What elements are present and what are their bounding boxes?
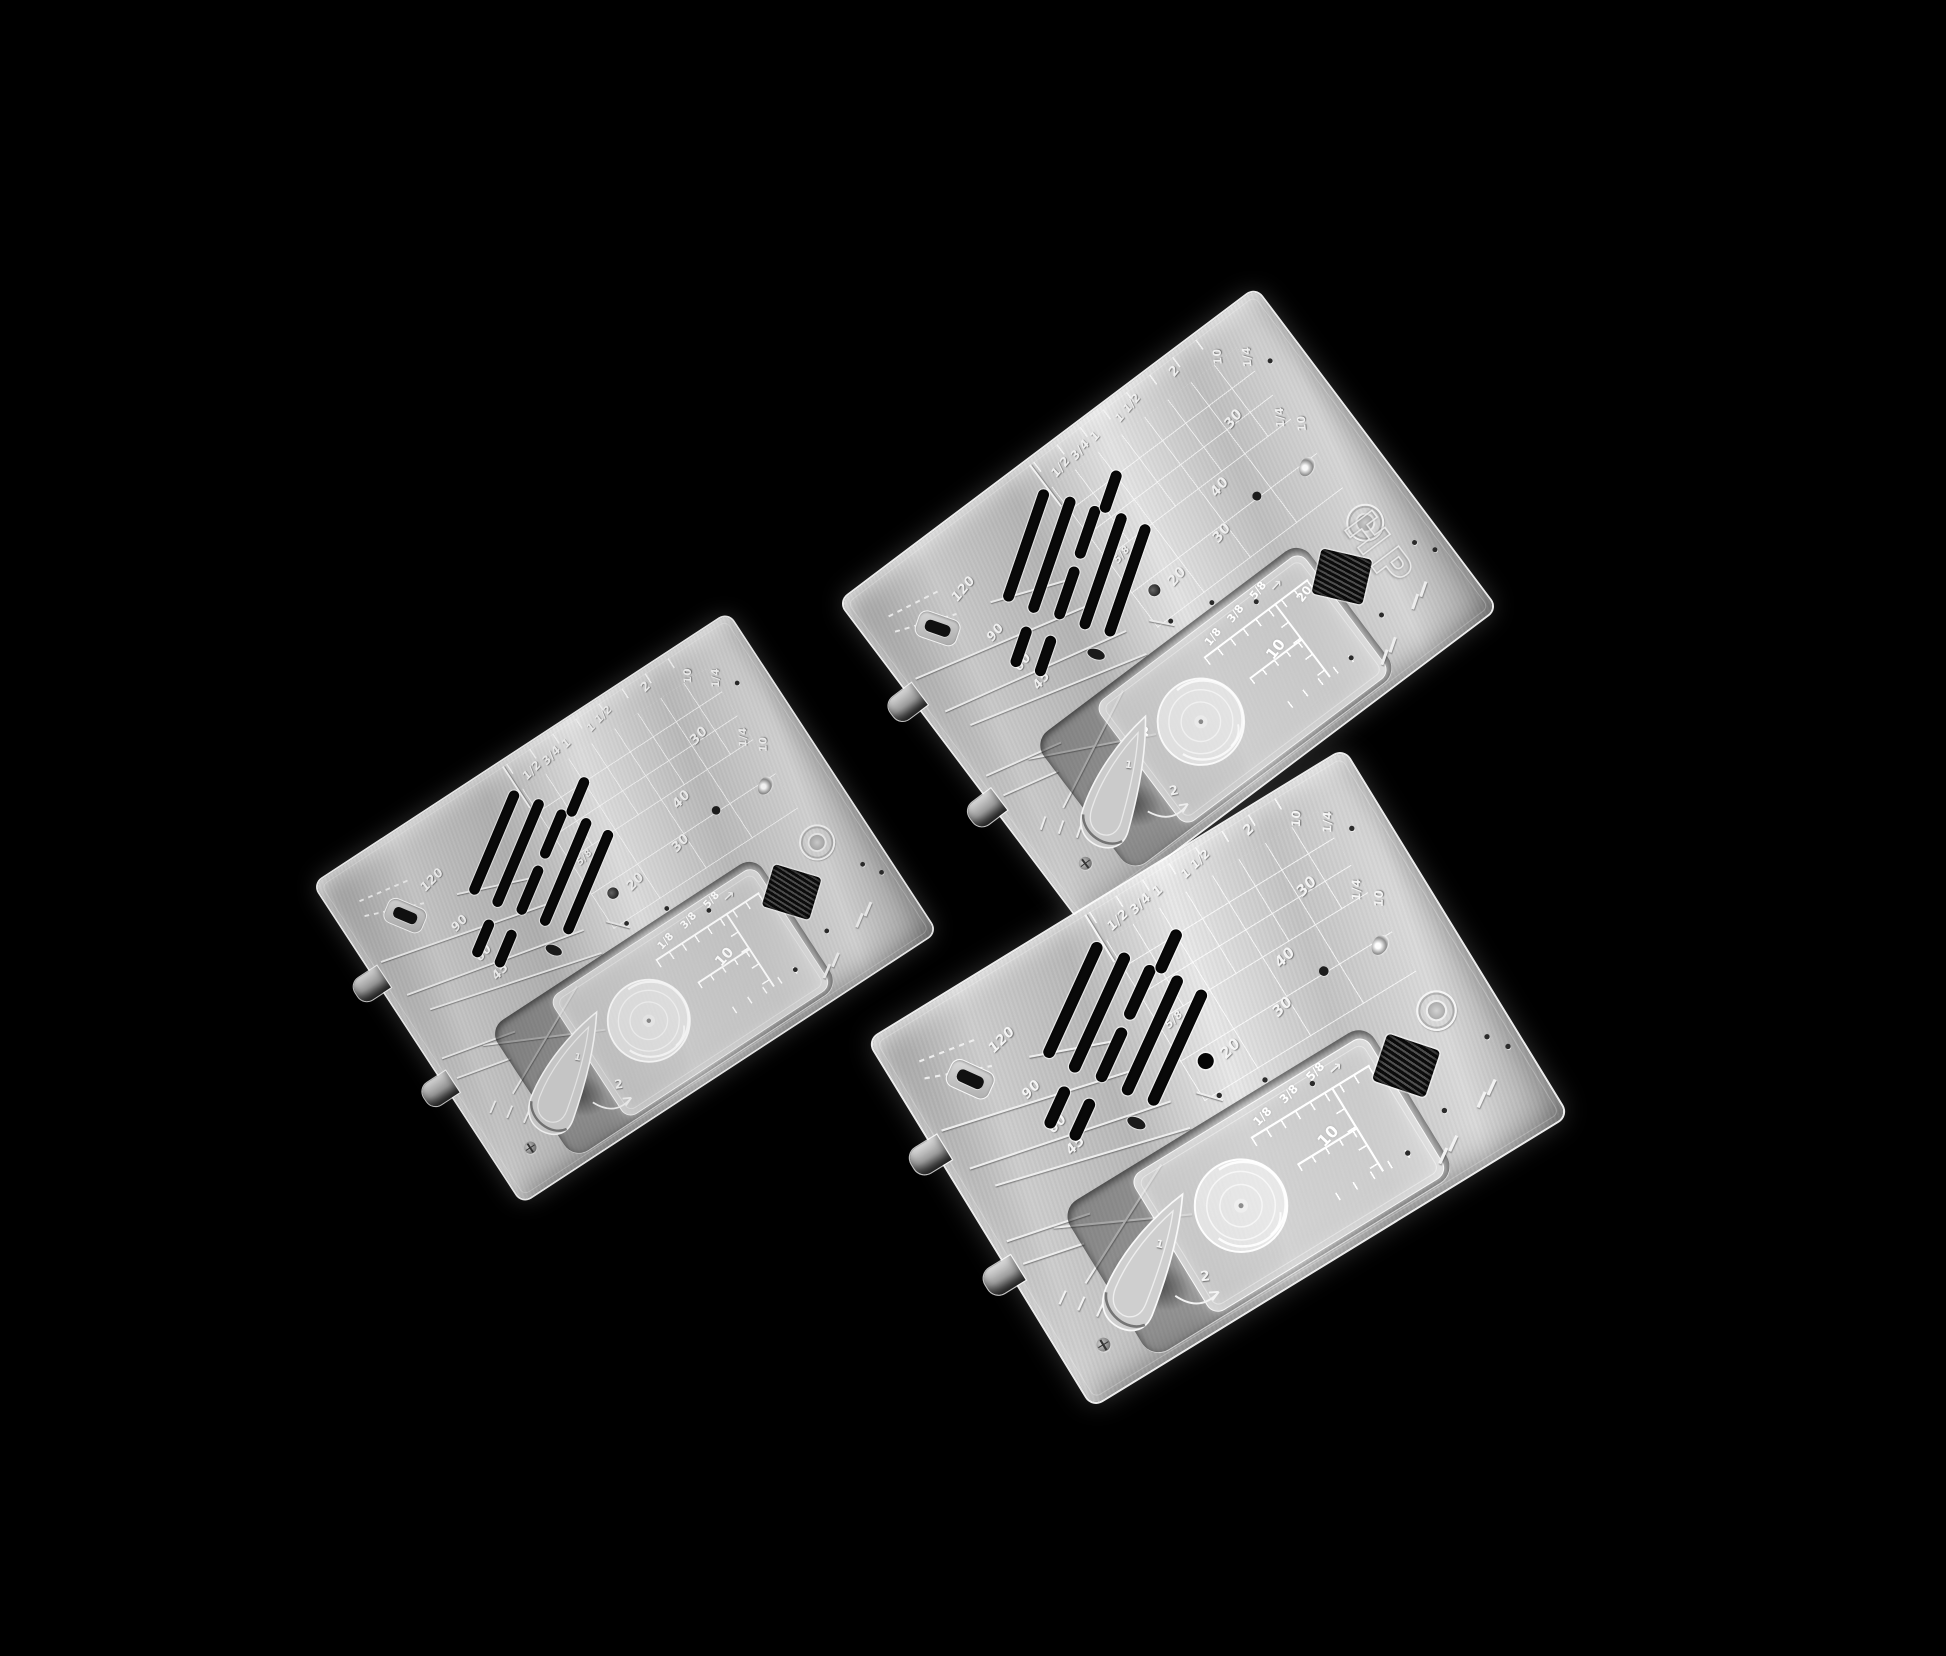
angle-label-120: 120 [987, 1024, 1017, 1057]
fraction-label: 1 [560, 736, 573, 751]
pin-hole [1504, 1043, 1511, 1050]
pin-hole [1378, 612, 1385, 619]
angle-label-120: 120 [419, 866, 446, 895]
cover-ruler-ticks3 [1335, 1147, 1414, 1200]
fraction-label: 1 [1150, 882, 1164, 899]
pin-hole [1348, 825, 1355, 832]
needle-plate-standard-bottom-right: 1/2 3/4 1 1 1/2 2 10 1/4 1/4 10 5/8 20 3… [869, 750, 1567, 1406]
fraction-label: 1 1/2 [1114, 391, 1143, 425]
pin-hole [1411, 539, 1418, 546]
pin-hole [823, 928, 830, 935]
lever-label-1: 1 [1124, 761, 1133, 772]
product-photo-scene: 1/2 3/4 1 1 1/2 2 10 1/4 1/4 10 5/8 20 3… [0, 0, 1946, 1656]
pin-hole [1441, 1107, 1448, 1114]
oval-hole [1086, 647, 1106, 662]
mounting-tab [350, 966, 391, 1005]
oval-hole [544, 942, 563, 957]
pin-hole [734, 680, 741, 687]
pin-hole [1267, 357, 1274, 364]
screw-hole [792, 817, 842, 867]
mounting-tab [979, 1255, 1025, 1299]
cover-ruler-ticks3 [732, 965, 801, 1014]
cover-ruler-label: 3/8 [678, 910, 698, 931]
mounting-tab [964, 789, 1007, 831]
needle-plate-standard-left: 1/2 3/4 1 1 1/2 2 10 1/4 1/4 10 5/8 20 3… [314, 614, 935, 1202]
fraction-label: 1 1/2 [585, 703, 613, 734]
pin-hole [1431, 546, 1438, 553]
mounting-tab [418, 1071, 459, 1110]
cover-ruler-label: 3/8 [1278, 1083, 1301, 1106]
corner-screw [1076, 854, 1094, 872]
screw-hole [1409, 983, 1465, 1039]
mounting-tab [884, 683, 927, 725]
pin-hole [859, 861, 866, 868]
pin-hole [1483, 1033, 1490, 1040]
needle-plate-hp-top-right: 1/2 3/4 1 1 1/2 2 10 1/4 1/4 10 5/8 20 3… [840, 289, 1496, 921]
angle-label-120: 120 [950, 573, 977, 605]
buttonhole-slot [381, 895, 430, 936]
mounting-tab [906, 1135, 952, 1179]
oval-hole [1125, 1114, 1147, 1132]
pin-hole [878, 869, 885, 876]
buttonhole-slot [943, 1056, 998, 1103]
cover-ruler-label: 3/8 [1225, 603, 1246, 625]
fraction-label: 1 [1088, 428, 1102, 444]
cover-ruler-ticks3 [1287, 652, 1357, 708]
corner-screw [1094, 1335, 1113, 1354]
corner-screw [522, 1139, 539, 1156]
